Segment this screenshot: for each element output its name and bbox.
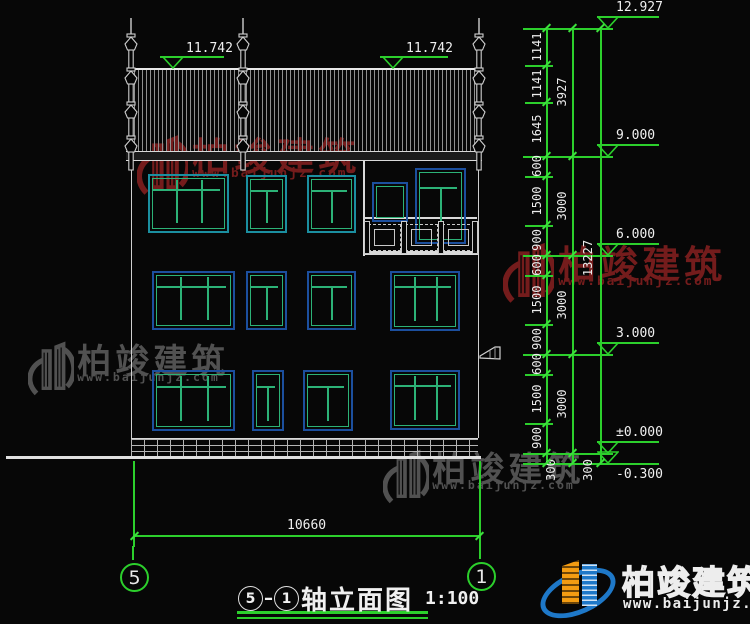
dim-value-total: 13227 (581, 240, 595, 276)
title-text: 轴立面图 (301, 580, 413, 617)
roof-elevation-triangle (382, 56, 404, 69)
dim-value-outer: 3000 (555, 389, 569, 418)
dimension-chain-line (572, 28, 574, 463)
railing-panel (405, 224, 438, 251)
elevation-value: 3.000 (616, 326, 655, 341)
elevation-value: -0.300 (616, 467, 663, 482)
dim-value-inner: 1141 (530, 32, 544, 61)
window-transom (157, 286, 226, 288)
title-axis-start: 5 (246, 591, 256, 607)
window-transom (312, 190, 347, 192)
window-mullion (436, 277, 438, 321)
axis-bubble-5-label: 5 (128, 567, 140, 589)
elevation-value: 9.000 (616, 128, 655, 143)
title-axis-circle-start: 5 (238, 586, 263, 611)
dim-value-inner: 900 (530, 229, 544, 251)
window-mullion (414, 376, 416, 420)
window-mullion (201, 180, 203, 223)
elevation-value: 6.000 (616, 227, 655, 242)
title-scale: 1:100 (425, 588, 479, 609)
dimension-extension-line (525, 102, 553, 104)
window (390, 271, 460, 331)
bottom-dimension-line (133, 535, 480, 537)
window-mullion (331, 190, 333, 223)
railing-panel-inner (411, 229, 432, 246)
logo-url-text: www.baijunjz.com (623, 596, 750, 612)
window (152, 271, 235, 330)
window-inner-frame (152, 178, 225, 229)
window-mullion (331, 286, 333, 320)
window (372, 182, 408, 222)
railing-post (472, 221, 478, 254)
title-axis-end: 1 (282, 591, 292, 607)
title-underline-thin (237, 617, 428, 619)
dim-value-outer: 300 (581, 459, 595, 481)
balcony-rail-bottom (364, 251, 477, 253)
logo-building-orange-icon (562, 560, 579, 604)
window-transom (420, 187, 457, 189)
dim-value-inner: 900 (530, 328, 544, 350)
logo-building-blue-icon (582, 564, 597, 606)
window-transom (153, 189, 220, 191)
elevation-marker-triangle (597, 144, 619, 157)
watermark-brand-icon (28, 339, 74, 404)
window (303, 370, 353, 431)
dim-value-inner: 1500 (530, 384, 544, 413)
dimension-extension-line (525, 225, 553, 227)
dim-value-inner: 900 (530, 427, 544, 449)
window-mullion (207, 277, 209, 320)
railing-panel-inner (374, 229, 395, 246)
railing-panel-inner (448, 229, 469, 246)
window-mullion (180, 376, 182, 421)
window-transom (157, 386, 226, 388)
window-inner-frame (376, 186, 404, 218)
window-transom (257, 386, 275, 388)
window-mullion (436, 376, 438, 420)
window-transom (251, 190, 278, 192)
railing-post (364, 221, 370, 254)
railing-post (401, 221, 407, 254)
window-mullion (327, 386, 329, 421)
watermark-url-text: www.baijunjz.com (558, 274, 713, 289)
roof-finial (234, 18, 252, 190)
elevation-value: ±0.000 (616, 425, 663, 440)
axis-line-5 (132, 546, 134, 560)
title-dash: – (264, 588, 273, 609)
window-transom (251, 286, 278, 288)
roof-finial (470, 18, 488, 190)
window-inner-frame (156, 275, 231, 326)
window (307, 271, 356, 330)
dimension-extension-line (525, 324, 553, 326)
window-mullion (414, 277, 416, 321)
window-mullion (176, 180, 178, 223)
title-axis-circle-end: 1 (274, 586, 299, 611)
balcony-floor-line (363, 253, 478, 255)
roof-elevation-value: 11.742 (406, 41, 453, 56)
dimension-extension-line (525, 65, 553, 67)
dim-value-inner: 1500 (530, 186, 544, 215)
elevation-marker-triangle (597, 342, 619, 355)
window-transom (308, 386, 344, 388)
elevation-value: 12.927 (616, 0, 663, 15)
window-mullion (267, 386, 269, 421)
axis-line-1 (479, 546, 481, 559)
window-inner-frame (394, 275, 456, 327)
drawing-title: 5 – 1 轴立面图 1:100 (238, 580, 479, 617)
roof-tile-hatch (130, 68, 478, 153)
window-mullion (266, 190, 268, 223)
window (246, 271, 287, 330)
window-inner-frame (394, 374, 456, 426)
window (148, 174, 229, 233)
axis-bubble-5: 5 (120, 563, 149, 592)
dim-value-outer: 3000 (555, 290, 569, 319)
ground-line (6, 456, 481, 459)
window-mullion (180, 277, 182, 320)
rain-spout-bracket (478, 343, 502, 367)
roof-elevation-value: 11.742 (186, 41, 233, 56)
window-inner-frame (156, 374, 231, 427)
window-mullion (266, 286, 268, 320)
dim-value-outer: 3000 (555, 191, 569, 220)
window (246, 175, 287, 233)
elevation-marker-triangle (597, 243, 619, 256)
window (152, 370, 235, 431)
window-transom (312, 286, 347, 288)
railing-post (438, 221, 444, 254)
dim-value-inner: 1645 (530, 115, 544, 144)
window-transom (395, 385, 451, 387)
brand-logo: 柏竣建筑 www.baijunjz.com (536, 554, 750, 620)
window-transom (395, 286, 451, 288)
window (307, 175, 356, 233)
elevation-drawing-canvas: 柏竣建筑www.baijunjz.com 柏竣建筑www.baijunjz.co… (0, 0, 750, 624)
roof-finial (122, 18, 140, 190)
window-mullion (207, 376, 209, 421)
railing-panel (368, 224, 401, 251)
bottom-dim-value: 10660 (287, 518, 326, 533)
dimension-extension-line (525, 423, 553, 425)
window (252, 370, 284, 431)
dim-value-outer: 3927 (555, 78, 569, 107)
window (390, 370, 460, 430)
dimension-chain-line (546, 28, 548, 463)
dim-value-inner: 1500 (530, 285, 544, 314)
dim-value-inner: 1141 (530, 69, 544, 98)
roof-elevation-triangle (162, 56, 184, 69)
railing-panel (442, 224, 475, 251)
